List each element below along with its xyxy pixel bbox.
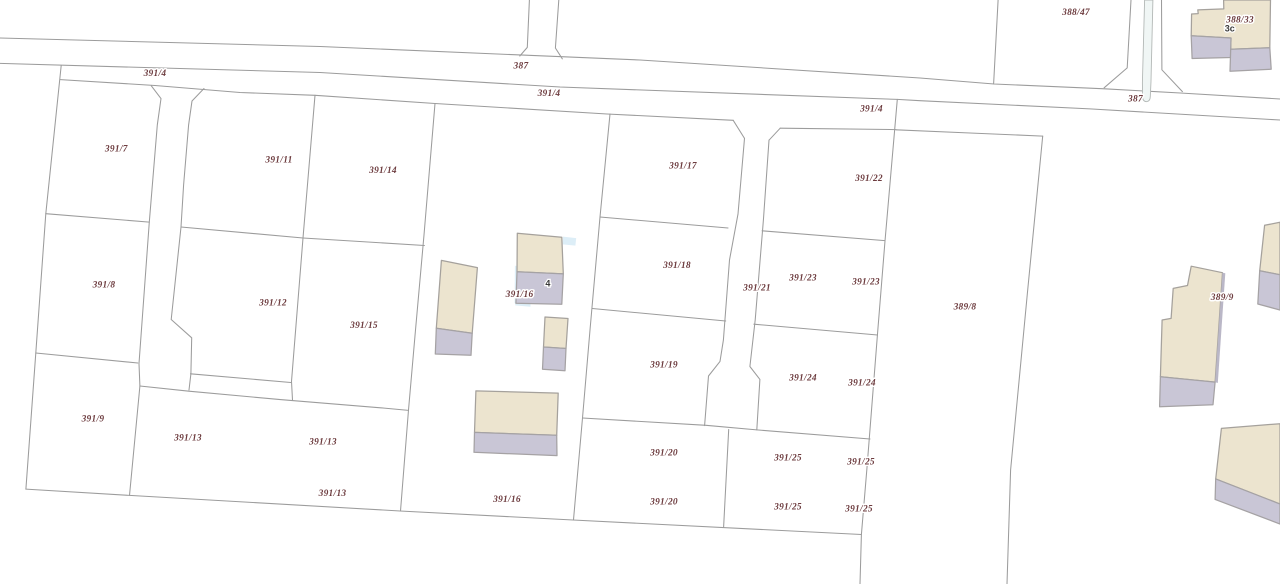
- svg-text:391/13: 391/13: [173, 434, 202, 444]
- svg-text:391/9: 391/9: [81, 415, 105, 425]
- svg-text:389/9: 389/9: [1210, 293, 1234, 303]
- svg-text:389/8: 389/8: [953, 303, 977, 313]
- svg-text:391/12: 391/12: [258, 299, 287, 309]
- svg-text:391/24: 391/24: [847, 379, 876, 389]
- svg-text:391/16: 391/16: [505, 290, 534, 300]
- svg-text:3c: 3c: [1225, 24, 1235, 34]
- svg-text:391/23: 391/23: [851, 278, 880, 288]
- svg-text:391/21: 391/21: [742, 284, 771, 294]
- svg-text:391/4: 391/4: [859, 105, 883, 115]
- svg-text:387: 387: [513, 62, 529, 72]
- svg-text:391/14: 391/14: [368, 166, 397, 176]
- svg-text:391/20: 391/20: [649, 449, 678, 459]
- svg-text:391/25: 391/25: [773, 503, 802, 513]
- svg-text:391/17: 391/17: [668, 162, 697, 172]
- svg-text:391/22: 391/22: [854, 174, 883, 184]
- svg-text:391/13: 391/13: [318, 489, 347, 499]
- svg-text:391/7: 391/7: [104, 145, 128, 155]
- svg-text:391/4: 391/4: [537, 89, 561, 99]
- svg-text:391/25: 391/25: [844, 505, 873, 515]
- svg-text:391/18: 391/18: [662, 261, 691, 271]
- svg-text:391/16: 391/16: [492, 495, 521, 505]
- svg-text:391/8: 391/8: [92, 281, 116, 291]
- svg-text:391/4: 391/4: [143, 69, 167, 79]
- svg-text:387: 387: [1127, 95, 1143, 105]
- svg-text:391/19: 391/19: [649, 361, 678, 371]
- svg-text:391/23: 391/23: [788, 274, 817, 284]
- svg-text:391/20: 391/20: [649, 498, 678, 508]
- svg-text:4: 4: [545, 278, 550, 288]
- svg-text:391/11: 391/11: [264, 156, 292, 166]
- svg-text:391/15: 391/15: [349, 321, 378, 331]
- svg-text:391/13: 391/13: [308, 438, 337, 448]
- svg-text:388/47: 388/47: [1061, 8, 1090, 18]
- svg-text:391/25: 391/25: [773, 454, 802, 464]
- svg-text:391/25: 391/25: [846, 458, 875, 468]
- svg-text:391/24: 391/24: [788, 374, 817, 384]
